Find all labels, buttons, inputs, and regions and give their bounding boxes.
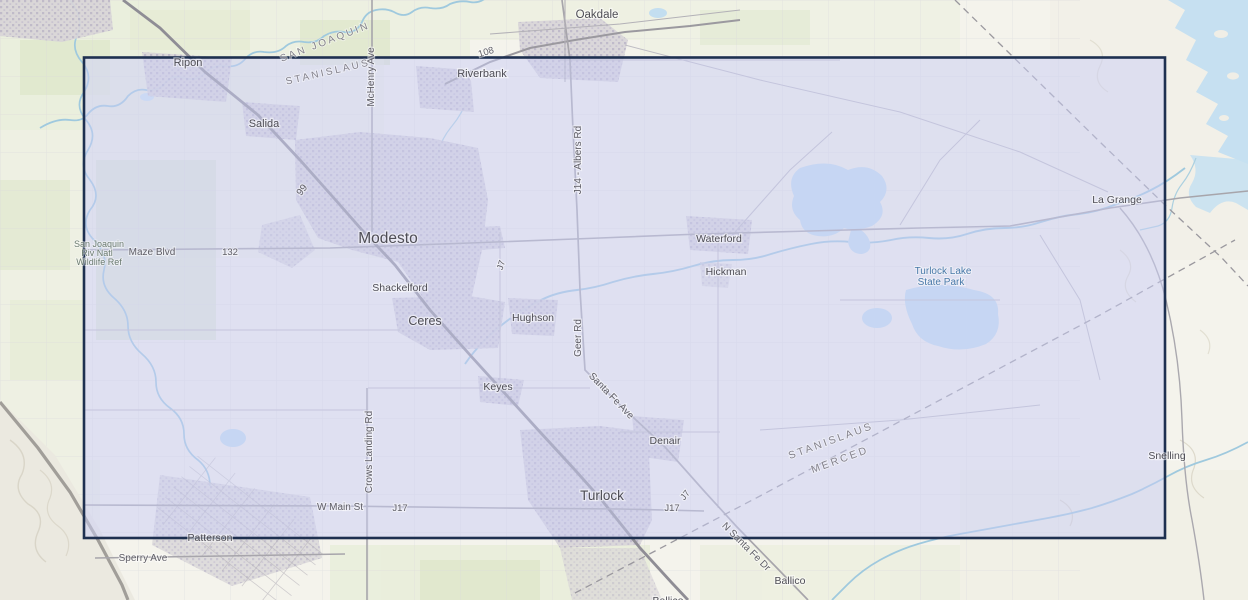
- park-label-turlock-lake-line1: Turlock Lake: [915, 266, 972, 277]
- city-label-ballico-south: Ballico: [653, 595, 684, 600]
- selection-extent[interactable]: [84, 58, 1165, 539]
- city-label-hickman: Hickman: [706, 266, 747, 278]
- city-label-turlock: Turlock: [580, 488, 624, 503]
- city-label-oakdale: Oakdale: [576, 9, 619, 21]
- park-label-turlock-lake-line2: State Park: [918, 277, 966, 288]
- city-label-keyes: Keyes: [483, 381, 512, 393]
- road-label-geer-rd: Geer Rd: [573, 319, 584, 357]
- city-label-la-grange: La Grange: [1092, 194, 1142, 206]
- route-label-132: 132: [222, 247, 238, 258]
- city-label-ripon: Ripon: [174, 57, 203, 69]
- city-label-denair: Denair: [650, 435, 681, 447]
- city-label-salida: Salida: [249, 118, 280, 130]
- city-label-patterson: Patterson: [188, 532, 233, 544]
- road-label-maze-blvd: Maze Blvd: [129, 247, 176, 258]
- road-label-albers-rd: J14 - Albers Rd: [573, 126, 584, 194]
- map-canvas[interactable]: Oakdale Ripon Riverbank Salida Modesto S…: [0, 0, 1248, 600]
- city-label-ballico: Ballico: [775, 575, 806, 587]
- city-label-snelling: Snelling: [1148, 450, 1186, 462]
- city-label-modesto: Modesto: [358, 230, 417, 247]
- refuge-label-line3: Wildlife Ref: [76, 257, 122, 267]
- city-label-shackelford: Shackelford: [372, 282, 428, 294]
- city-label-hughson: Hughson: [512, 312, 554, 324]
- road-label-crows-landing-rd: Crows Landing Rd: [364, 411, 375, 493]
- road-label-mchenry-ave: McHenry Ave: [366, 47, 377, 107]
- city-label-riverbank: Riverbank: [457, 68, 507, 80]
- road-label-w-main-st: W Main St: [317, 502, 363, 513]
- road-label-sperry-ave: Sperry Ave: [119, 553, 168, 564]
- map-viewport[interactable]: Oakdale Ripon Riverbank Salida Modesto S…: [0, 0, 1248, 600]
- route-label-j17-west: J17: [392, 503, 407, 514]
- route-label-j17-east: J17: [664, 503, 679, 514]
- city-label-waterford: Waterford: [696, 233, 742, 245]
- city-label-ceres: Ceres: [408, 314, 441, 328]
